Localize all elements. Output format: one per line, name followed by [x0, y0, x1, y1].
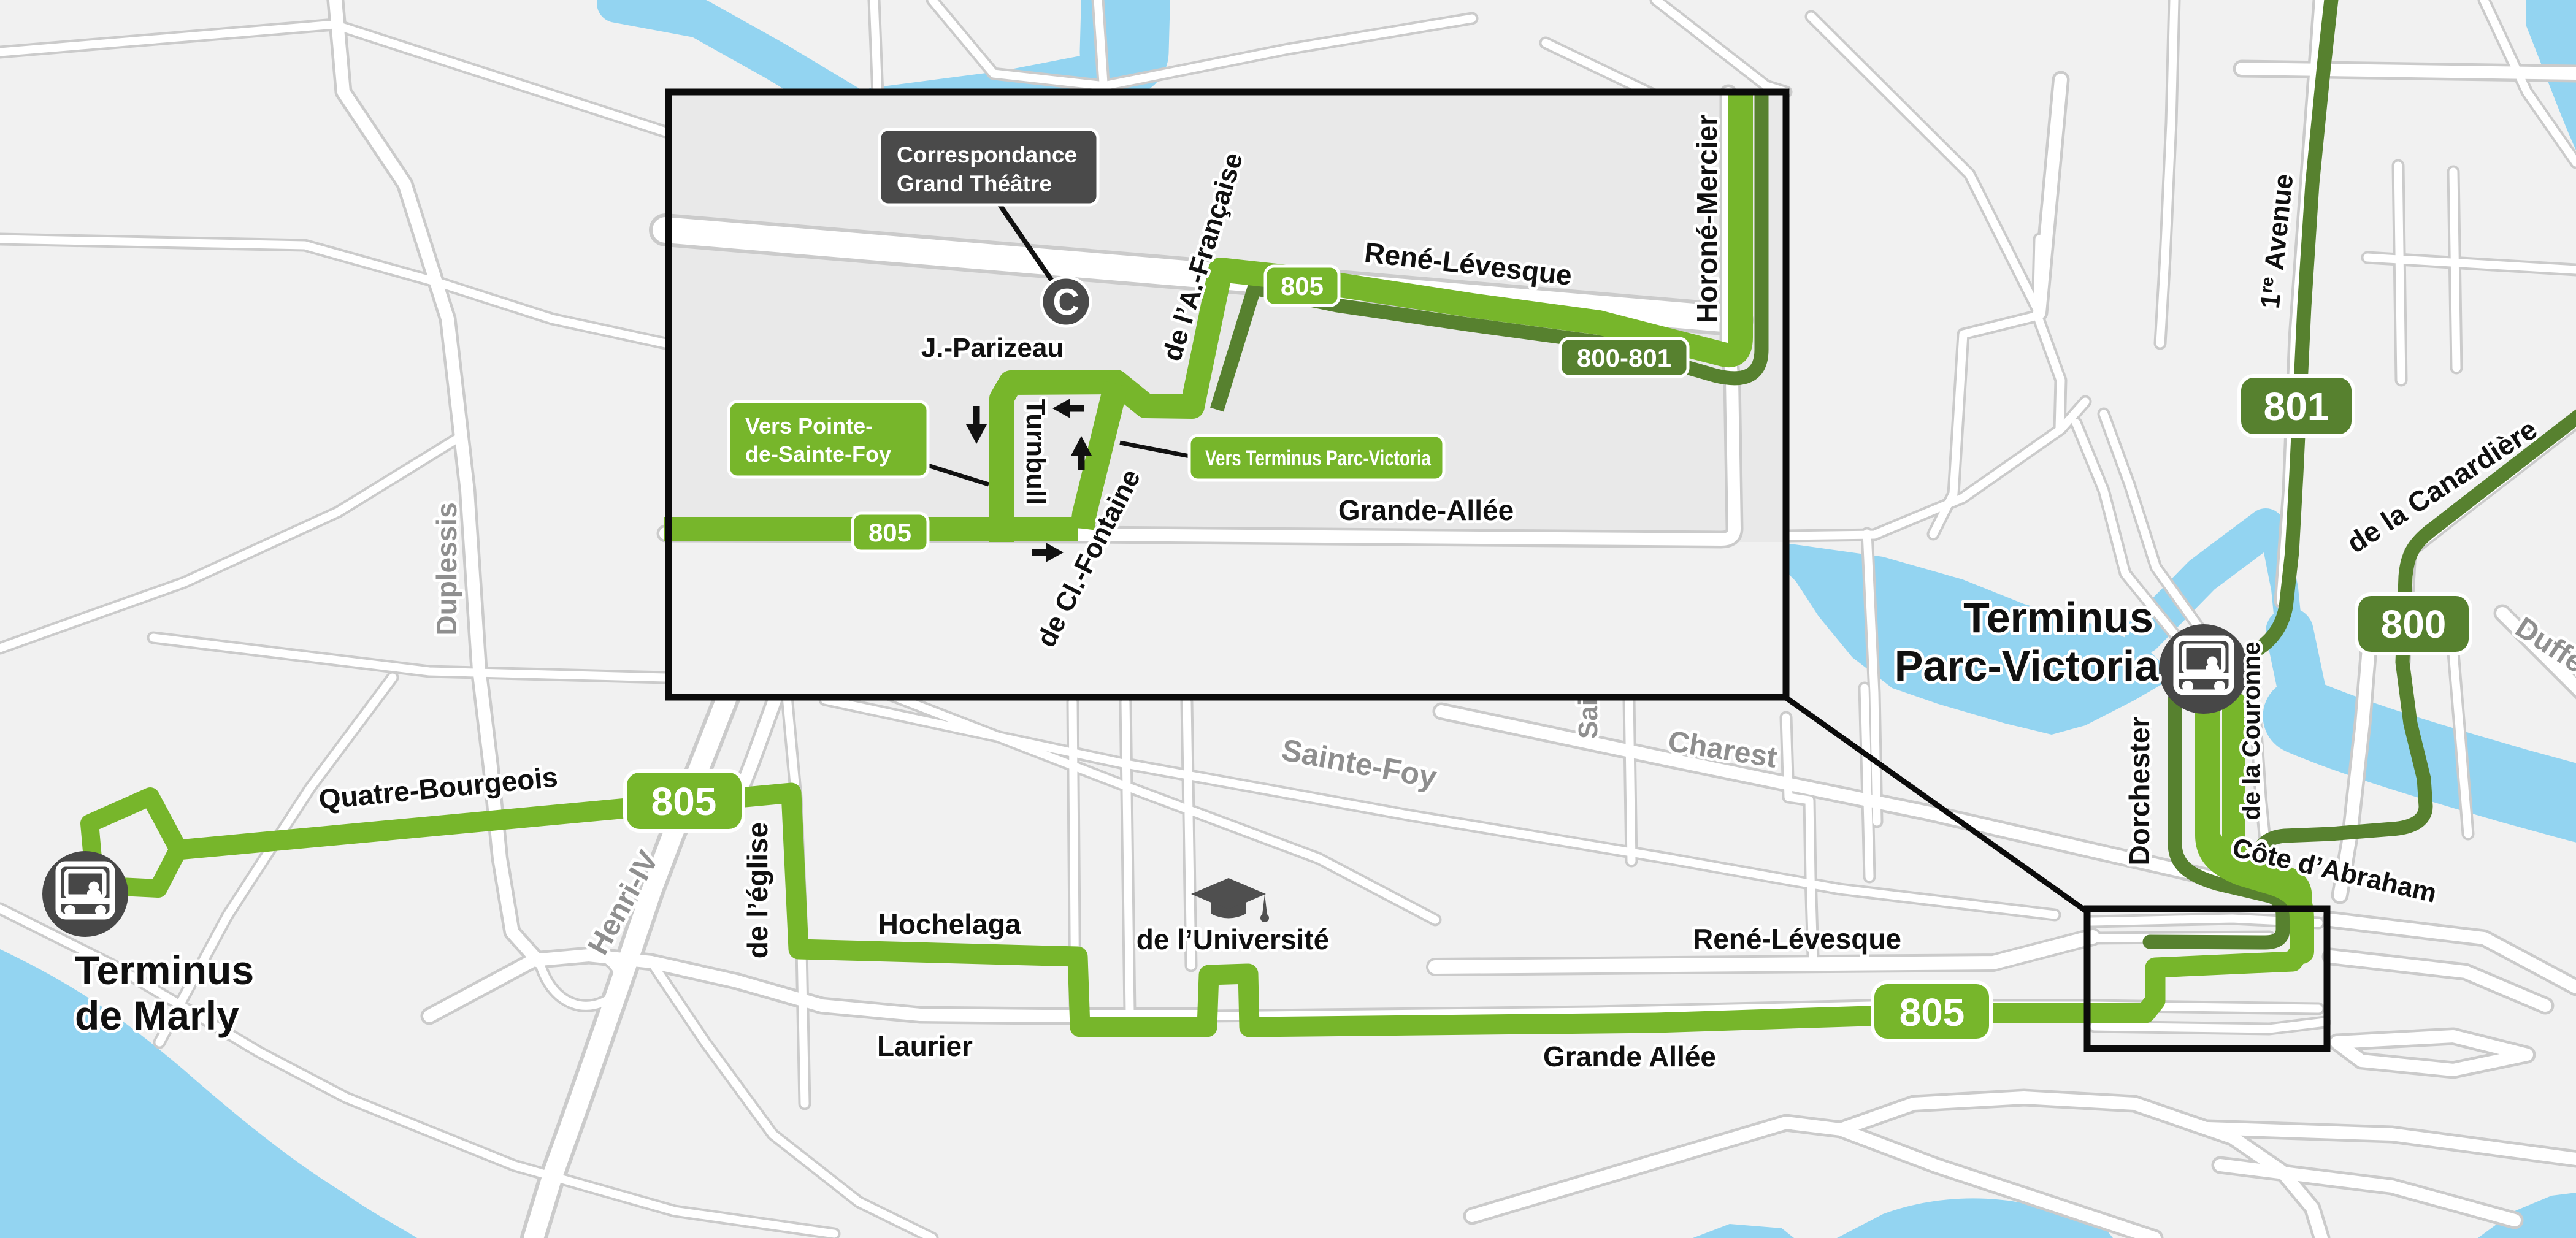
svg-text:Turnbull: Turnbull [1021, 399, 1051, 505]
svg-text:René-Lévesque: René-Lévesque [1693, 923, 1901, 955]
svg-text:Laurier: Laurier [877, 1030, 973, 1062]
svg-text:C: C [1052, 281, 1079, 323]
svg-text:J.-Parizeau: J.-Parizeau [921, 333, 1064, 363]
svg-text:Hochelaga: Hochelaga [878, 908, 1021, 940]
svg-text:Terminus: Terminus [75, 947, 254, 993]
svg-text:805: 805 [1281, 272, 1324, 300]
svg-text:Terminus: Terminus [1963, 594, 2153, 641]
svg-text:Dorchester: Dorchester [2123, 716, 2155, 865]
svg-text:805: 805 [1899, 990, 1965, 1034]
svg-text:de la Couronne: de la Couronne [2238, 641, 2265, 820]
svg-text:Vers Pointe-: Vers Pointe- [745, 413, 873, 438]
svg-text:Grande-Allée: Grande-Allée [1338, 494, 1514, 526]
svg-text:de-Sainte-Foy: de-Sainte-Foy [745, 441, 891, 467]
svg-text:801: 801 [2264, 384, 2329, 429]
svg-text:de Marly: de Marly [75, 993, 239, 1038]
svg-text:de l’église: de l’église [742, 822, 773, 958]
svg-text:800: 800 [2381, 602, 2447, 646]
svg-text:de l’Université: de l’Université [1137, 923, 1329, 955]
svg-text:Parc-Victoria: Parc-Victoria [1895, 642, 2160, 690]
svg-text:805: 805 [651, 779, 717, 823]
svg-text:Correspondance: Correspondance [897, 142, 1077, 167]
svg-text:Vers Terminus Parc-Victoria: Vers Terminus Parc-Victoria [1205, 446, 1431, 470]
svg-text:Grand Théâtre: Grand Théâtre [897, 171, 1052, 196]
svg-text:800-801: 800-801 [1577, 343, 1671, 372]
svg-text:Duplessis: Duplessis [431, 502, 462, 635]
svg-text:Horoné-Mercier: Horoné-Mercier [1691, 115, 1723, 323]
svg-text:805: 805 [868, 518, 911, 547]
svg-text:Grande Allée: Grande Allée [1543, 1041, 1716, 1072]
svg-text:Sai: Sai [1573, 698, 1603, 739]
